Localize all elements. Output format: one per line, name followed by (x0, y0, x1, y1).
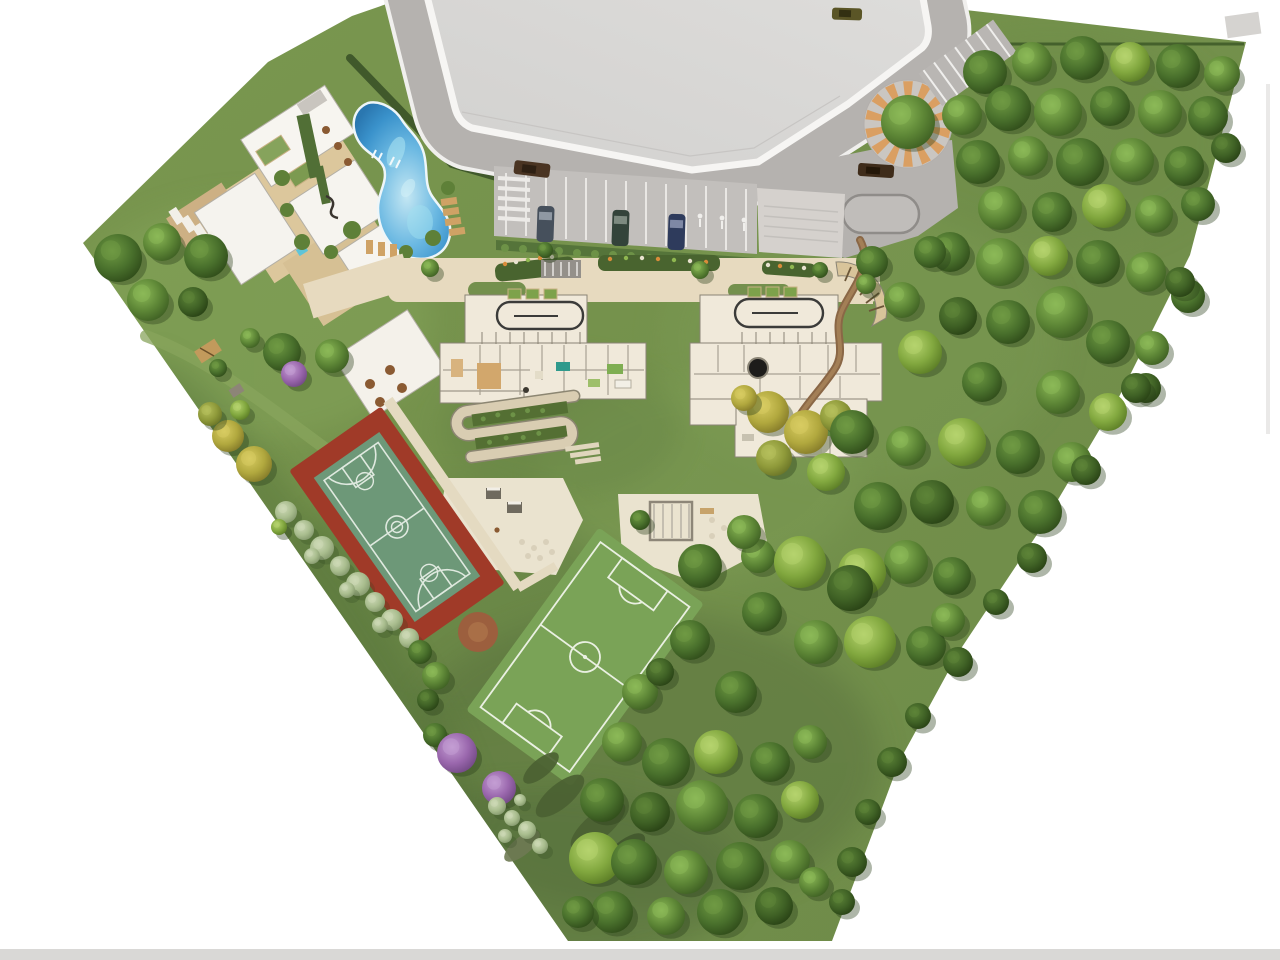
tree-highlight (790, 416, 808, 434)
tree-canopy (236, 446, 272, 482)
tree-highlight (1116, 144, 1134, 162)
tree-canopy (421, 259, 439, 277)
tree-highlight (760, 892, 776, 908)
crosswalk (498, 178, 530, 180)
frame-bottom-strip (0, 949, 1280, 960)
tree-highlight (586, 784, 604, 802)
tree-highlight (1170, 151, 1187, 168)
parked-car (611, 210, 629, 247)
tree-canopy (1110, 138, 1154, 182)
tree-canopy (830, 410, 874, 454)
planter-flowers (778, 264, 782, 268)
tree-highlight (506, 812, 513, 819)
tree-canopy (1135, 195, 1173, 233)
patio-tables (385, 365, 395, 375)
planter-flowers (672, 258, 676, 262)
tree-canopy (1086, 320, 1130, 364)
tree-canopy (827, 565, 873, 611)
tree-highlight (268, 338, 284, 354)
tree-canopy (1076, 240, 1120, 284)
tree-canopy (281, 361, 307, 387)
tree-canopy (143, 223, 181, 261)
tree-highlight (617, 845, 636, 864)
tree-highlight (723, 848, 743, 868)
tree-canopy (812, 262, 828, 278)
tree-highlight (756, 747, 773, 764)
deck-shrubs (274, 170, 290, 186)
tree-canopy (884, 282, 920, 318)
tree-highlight (889, 287, 904, 302)
tree-highlight (1209, 61, 1224, 76)
tree-canopy (630, 792, 670, 832)
tree-highlight (909, 706, 920, 717)
tree-highlight (636, 797, 653, 814)
tree-highlight (649, 744, 669, 764)
parked-car (667, 214, 685, 251)
tree-canopy (580, 778, 624, 822)
tree-canopy (1135, 331, 1169, 365)
tree-highlight (1082, 246, 1100, 264)
tree-highlight (824, 404, 837, 417)
planter-flowers (790, 265, 794, 269)
tree-highlight (969, 56, 987, 74)
tree-highlight (313, 539, 323, 549)
tree-highlight (297, 523, 305, 531)
tree-highlight (1194, 101, 1211, 118)
tree-highlight (201, 405, 211, 415)
tree-canopy (1121, 373, 1151, 403)
tree-canopy (562, 896, 594, 928)
tree-highlight (936, 607, 950, 621)
tree-highlight (972, 491, 989, 508)
tree-canopy (676, 780, 728, 832)
shape (544, 289, 557, 299)
tree-highlight (700, 736, 718, 754)
shape (607, 364, 623, 374)
tree-canopy (942, 95, 982, 135)
tree-canopy (339, 582, 355, 598)
tree-canopy (844, 616, 896, 668)
tree-canopy (365, 592, 385, 612)
tree-canopy (315, 339, 349, 373)
tree-highlight (1014, 141, 1031, 158)
tree-highlight (904, 336, 922, 354)
tree-canopy (646, 658, 674, 686)
tree-highlight (1041, 94, 1061, 114)
deck-shrubs (425, 230, 441, 246)
tree-canopy (996, 430, 1040, 474)
shape (522, 164, 537, 174)
tree-canopy (209, 359, 227, 377)
tree-canopy (910, 480, 954, 524)
tree-canopy (734, 794, 778, 838)
tree-canopy (727, 515, 761, 549)
deck-shrubs (280, 203, 294, 217)
frame-right-strip (1266, 84, 1270, 434)
tree-highlight (374, 619, 381, 626)
tree-highlight (786, 786, 802, 802)
tree-highlight (833, 892, 844, 903)
planter-flowers (640, 256, 644, 260)
tree-canopy (985, 85, 1031, 131)
tree-highlight (860, 250, 873, 263)
tree-highlight (1092, 326, 1110, 344)
tree-canopy (330, 556, 350, 576)
tree-highlight (841, 851, 854, 864)
shape (690, 343, 882, 401)
dot (709, 533, 715, 539)
tree-highlight (368, 595, 376, 603)
bed-shrubs (519, 245, 527, 253)
tree-highlight (426, 726, 436, 736)
patio-tables (397, 383, 407, 393)
tree-canopy (372, 617, 388, 633)
shape (700, 508, 714, 514)
tree-highlight (491, 799, 499, 807)
pool-lounger (366, 240, 373, 254)
tree (1135, 331, 1174, 369)
shape (451, 359, 463, 377)
tree-canopy (230, 400, 250, 420)
tree-canopy (962, 362, 1002, 402)
tree-highlight (306, 550, 313, 557)
tree-highlight (962, 146, 980, 164)
deck-shrubs (343, 221, 361, 239)
tree-highlight (814, 264, 821, 271)
tree-canopy (1089, 393, 1127, 431)
tree-canopy (877, 747, 907, 777)
tree-canopy (127, 279, 169, 321)
tree-highlight (1021, 547, 1034, 560)
planter-flowers (766, 263, 770, 267)
dot (549, 549, 555, 555)
tree-canopy (691, 261, 709, 279)
tree-highlight (1140, 335, 1154, 349)
tree-highlight (1018, 47, 1035, 64)
site-plan (0, 0, 1280, 960)
tree-canopy (408, 640, 432, 664)
tree-canopy (807, 453, 845, 491)
tree-highlight (521, 823, 529, 831)
tree-highlight (861, 488, 881, 508)
tree-highlight (859, 277, 867, 285)
tree-canopy (799, 867, 829, 897)
tree-highlight (1140, 200, 1156, 216)
tree-highlight (684, 550, 702, 568)
tree-highlight (487, 775, 501, 789)
dot (525, 553, 531, 559)
pool-lounger (378, 242, 385, 256)
tree-canopy (422, 662, 450, 690)
tree-highlight (1058, 447, 1075, 464)
deck-shrubs (294, 234, 310, 250)
tree-highlight (798, 729, 812, 743)
tree-canopy (715, 671, 757, 713)
planter-flowers (514, 260, 518, 264)
tree-canopy (1181, 187, 1215, 221)
tree-canopy (1017, 543, 1047, 573)
tree-canopy (943, 647, 973, 677)
planter-flowers (624, 256, 628, 260)
tree-canopy (856, 246, 888, 278)
shape (477, 363, 501, 389)
tree-highlight (411, 643, 421, 653)
shape (615, 380, 631, 388)
tree-highlight (947, 651, 960, 664)
tree-canopy (697, 889, 743, 935)
patio-tables (322, 126, 330, 134)
tree-highlight (652, 902, 668, 918)
tree (1017, 543, 1052, 577)
deck-shrubs (324, 245, 338, 259)
tree-highlight (212, 361, 220, 369)
tree-highlight (101, 240, 121, 260)
tree-canopy (793, 725, 827, 759)
tree-highlight (148, 228, 164, 244)
tree-canopy (886, 426, 926, 466)
tree-highlight (1132, 257, 1149, 274)
dropoff-island (843, 195, 919, 233)
tree-highlight (241, 451, 256, 466)
tree-canopy (488, 797, 506, 815)
tree-highlight (748, 597, 765, 614)
crosswalk (498, 218, 530, 220)
shape (614, 216, 627, 224)
tree-canopy (532, 838, 548, 854)
tree-highlight (1186, 191, 1200, 205)
bed-shrubs (573, 249, 581, 257)
tree-highlight (566, 900, 579, 913)
tree-canopy (1071, 455, 1101, 485)
tree-highlight (776, 845, 793, 862)
tree-highlight (918, 240, 931, 253)
tree-canopy (1090, 86, 1130, 126)
tree-canopy (1138, 90, 1182, 134)
tree-highlight (516, 796, 521, 801)
tree-highlight (1002, 436, 1020, 454)
tree-highlight (945, 424, 965, 444)
tree-highlight (633, 513, 641, 521)
tree-highlight (1066, 42, 1084, 60)
tree-highlight (627, 679, 642, 694)
tree-highlight (1144, 96, 1162, 114)
shape (523, 387, 529, 393)
dot (543, 539, 549, 545)
tree-highlight (426, 666, 438, 678)
tree-highlight (851, 623, 873, 645)
tree-highlight (539, 244, 546, 251)
tree-highlight (676, 625, 693, 642)
tree-canopy (716, 842, 764, 890)
patio-tables (334, 142, 342, 150)
planter-flowers (802, 266, 806, 270)
tree-highlight (1034, 241, 1051, 258)
tree-canopy (504, 810, 520, 826)
tree-canopy (1008, 136, 1048, 176)
shape (670, 220, 683, 228)
tree-canopy (514, 794, 526, 806)
tree-highlight (761, 445, 776, 460)
tree-highlight (273, 521, 280, 528)
shape (539, 212, 552, 220)
tree-canopy (1028, 236, 1068, 276)
tree-canopy (756, 440, 792, 476)
tree-canopy (976, 238, 1024, 286)
tree-canopy (939, 297, 977, 335)
tree-canopy (1188, 96, 1228, 136)
tree-highlight (735, 388, 746, 399)
tree-highlight (890, 546, 908, 564)
tree-highlight (285, 364, 296, 375)
tree-highlight (1024, 496, 1042, 514)
tree-highlight (889, 102, 912, 125)
shape (742, 434, 754, 441)
tree-highlight (534, 840, 541, 847)
dot (531, 545, 537, 551)
bed-shrubs (591, 250, 599, 258)
tree-highlight (916, 486, 934, 504)
tree-canopy (670, 620, 710, 660)
accessible-stall-symbols (720, 216, 725, 221)
tree-highlight (1094, 398, 1110, 414)
tree-canopy (664, 850, 708, 894)
tree-canopy (881, 95, 935, 149)
tree-highlight (732, 519, 746, 533)
tree-canopy (1032, 192, 1072, 232)
tree-canopy (304, 548, 320, 564)
tree-canopy (794, 620, 838, 664)
tree-canopy (1018, 490, 1062, 534)
tree-canopy (1204, 56, 1240, 92)
tree-highlight (1116, 47, 1133, 64)
accessible-stall-symbols (742, 218, 747, 223)
tree-canopy (1126, 252, 1166, 292)
tree-highlight (721, 676, 739, 694)
parked-car (536, 206, 554, 243)
dot (709, 517, 715, 523)
tree-canopy (856, 274, 876, 294)
tree-canopy (417, 689, 439, 711)
tree-canopy (986, 300, 1030, 344)
shape (839, 10, 851, 17)
tree-canopy (1036, 370, 1080, 414)
tree-highlight (133, 284, 151, 302)
tree-highlight (278, 504, 287, 513)
tree-canopy (933, 557, 971, 595)
tree-highlight (182, 291, 195, 304)
tree-highlight (243, 331, 251, 339)
tree-canopy (966, 486, 1006, 526)
tree-highlight (740, 800, 758, 818)
tree-highlight (938, 562, 954, 578)
shape (748, 287, 761, 297)
tree-highlight (500, 831, 506, 837)
tree-highlight (333, 559, 341, 567)
crosswalk (498, 188, 530, 190)
dot (721, 525, 727, 531)
shape (690, 399, 736, 425)
tree-highlight (576, 839, 598, 861)
tree-canopy (755, 887, 793, 925)
planter-flowers (503, 262, 507, 266)
tree-highlight (233, 403, 241, 411)
tree-canopy (742, 592, 782, 632)
planter-flowers (656, 257, 660, 261)
tree-canopy (855, 799, 881, 825)
tree-highlight (992, 306, 1010, 324)
tree-highlight (983, 244, 1003, 264)
shape (468, 622, 488, 642)
tree-highlight (670, 856, 688, 874)
tree-highlight (859, 802, 870, 813)
dot (537, 555, 543, 561)
edge-gray-block (1225, 12, 1262, 39)
shape (866, 167, 880, 175)
shape (766, 287, 779, 297)
tree-canopy (94, 234, 142, 282)
tree-canopy (1012, 42, 1052, 82)
tree-canopy (694, 730, 738, 774)
tree-canopy (537, 242, 553, 258)
tree (1165, 267, 1200, 301)
site-plan-canvas (0, 0, 1280, 960)
tree-canopy (931, 603, 965, 637)
deck-shrubs (441, 181, 455, 195)
tree-canopy (1060, 36, 1104, 80)
tree-highlight (800, 626, 818, 644)
tree-canopy (983, 589, 1009, 615)
tree-canopy (837, 847, 867, 877)
tree-canopy (731, 385, 757, 411)
tree-canopy (1110, 42, 1150, 82)
tree-highlight (424, 261, 432, 269)
dot (494, 527, 499, 532)
tree-highlight (443, 738, 460, 755)
tree-highlight (1215, 137, 1228, 150)
tree-highlight (597, 896, 615, 914)
tree-highlight (881, 751, 894, 764)
tree-canopy (184, 234, 228, 278)
tree-highlight (320, 343, 334, 357)
tree-highlight (1169, 271, 1182, 284)
tree-highlight (1075, 459, 1088, 472)
planter-flowers (608, 257, 612, 261)
tree-highlight (1063, 144, 1083, 164)
shape (556, 362, 570, 371)
tree-highlight (1162, 50, 1180, 68)
tree-highlight (944, 302, 960, 318)
tree-canopy (294, 520, 314, 540)
shape (526, 289, 539, 299)
bed-shrubs (501, 244, 509, 252)
tree-canopy (781, 781, 819, 819)
tree-canopy (647, 897, 685, 935)
shape (535, 371, 543, 379)
tree-canopy (271, 519, 287, 535)
patio-tables (375, 397, 385, 407)
tree-highlight (991, 91, 1010, 110)
tree-canopy (1164, 146, 1204, 186)
tree-highlight (803, 871, 816, 884)
tree-canopy (642, 738, 690, 786)
tree-highlight (781, 543, 803, 565)
crosswalk (498, 198, 530, 200)
tree-highlight (341, 584, 348, 591)
tree-highlight (912, 631, 929, 648)
entry-plaza (757, 188, 845, 258)
shape (508, 289, 521, 299)
tree-canopy (978, 186, 1022, 230)
